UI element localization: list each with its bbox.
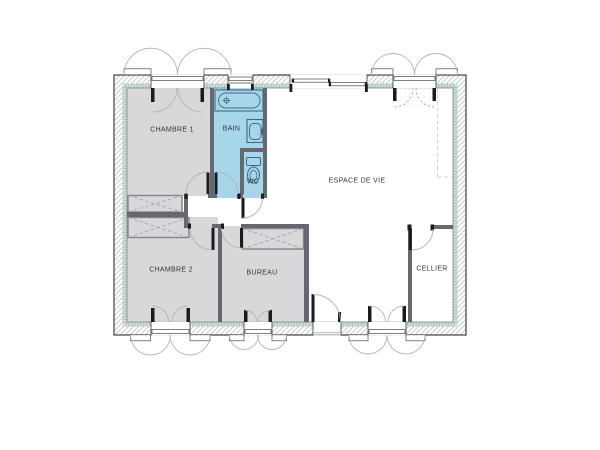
room-label-cellier: CELLIER xyxy=(416,265,447,272)
door-leaf-wc xyxy=(242,198,245,219)
room-label-bain: BAIN xyxy=(223,126,241,133)
door-leaf-cellier xyxy=(409,229,412,250)
room-label-espace-de-vie: ESPACE DE VIE xyxy=(329,178,386,185)
room-label-chambre1: CHAMBRE 1 xyxy=(150,126,194,133)
floor-plan-page: CHAMBRE 1 BAIN WC ESPACE DE VIE CHAMBRE … xyxy=(0,0,600,450)
room-chambre1-floor xyxy=(127,88,210,196)
room-label-wc: WC xyxy=(247,178,259,185)
window-bain xyxy=(227,75,254,91)
room-label-chambre2: CHAMBRE 2 xyxy=(149,267,193,274)
entry-tile-area xyxy=(394,89,435,107)
floor-plan-drawing xyxy=(0,0,600,450)
door-leaf-chambre2 xyxy=(212,228,215,250)
door-leaf-bureau xyxy=(240,228,243,248)
door-leaf-bain xyxy=(215,173,218,195)
door-leaf-chambre1 xyxy=(207,173,210,195)
room-label-bureau: BUREAU xyxy=(247,270,278,277)
